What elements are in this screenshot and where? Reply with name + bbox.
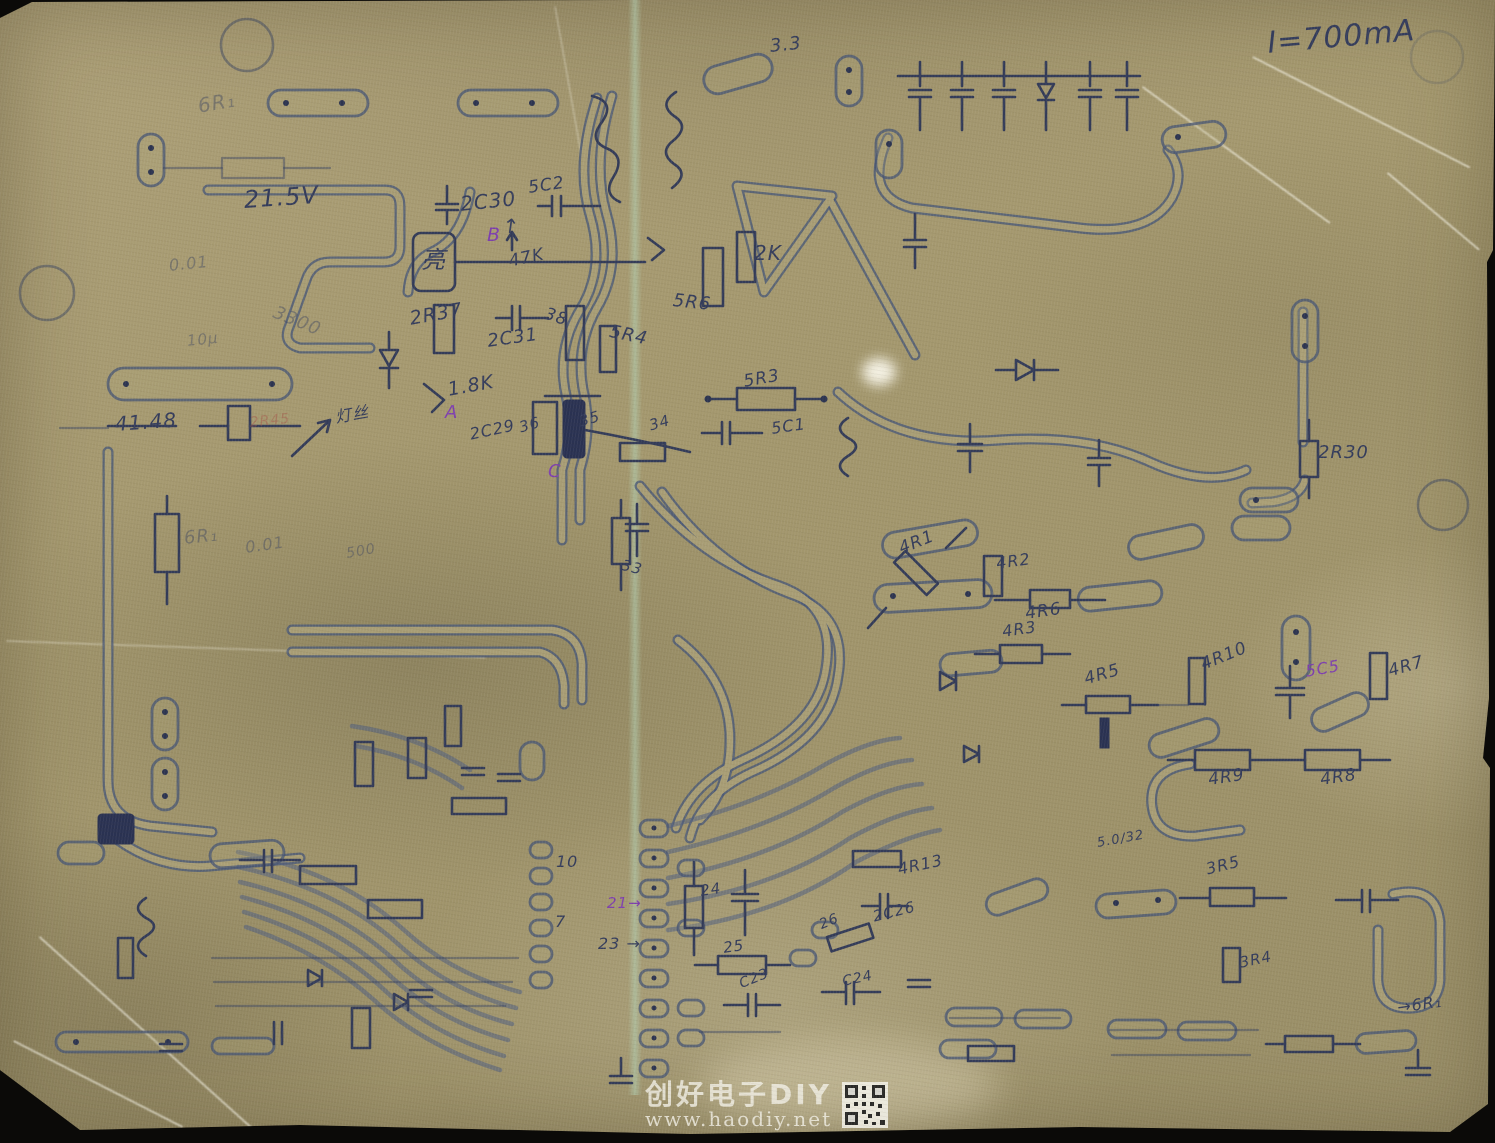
schematic-label: 7 xyxy=(555,912,566,931)
schematic-label: B xyxy=(487,224,501,246)
schematic-label: 41.48 xyxy=(114,408,178,436)
schematic-label: 25 xyxy=(722,936,745,957)
schematic-label: C xyxy=(548,461,562,482)
schematic-label: 21→ xyxy=(607,894,642,912)
schematic-label: 10 xyxy=(556,852,578,871)
schematic-label: 5R6 xyxy=(672,290,712,315)
schematic-label: 24 xyxy=(699,879,722,900)
schematic-label: 23 → xyxy=(598,934,641,953)
schematic-label: A xyxy=(445,402,458,423)
watermark: 创好电子DIY www.haodiy.net xyxy=(645,1080,888,1130)
watermark-url: www.haodiy.net xyxy=(645,1109,832,1130)
schematic-label: 2R30 xyxy=(1318,442,1369,463)
schematic-label: 6R₁ xyxy=(183,524,219,548)
watermark-qr-code xyxy=(842,1082,888,1128)
scanned-schematic-page: I=700mA6R₁21.5V0.01330010μ2C305C2亮B↑47K2… xyxy=(0,0,1495,1143)
paper-background: I=700mA6R₁21.5V0.01330010μ2C305C2亮B↑47K2… xyxy=(0,0,1495,1143)
schematic-label: 10μ xyxy=(186,329,219,350)
schematic-label: 3.3 xyxy=(769,33,803,57)
schematic-label: 亮 xyxy=(421,240,446,275)
schematic-label: 2K xyxy=(754,241,782,265)
watermark-title: 创好电子DIY xyxy=(645,1080,832,1109)
schematic-label: ↑ xyxy=(501,213,522,239)
schematic-label: 21.5V xyxy=(243,181,320,214)
